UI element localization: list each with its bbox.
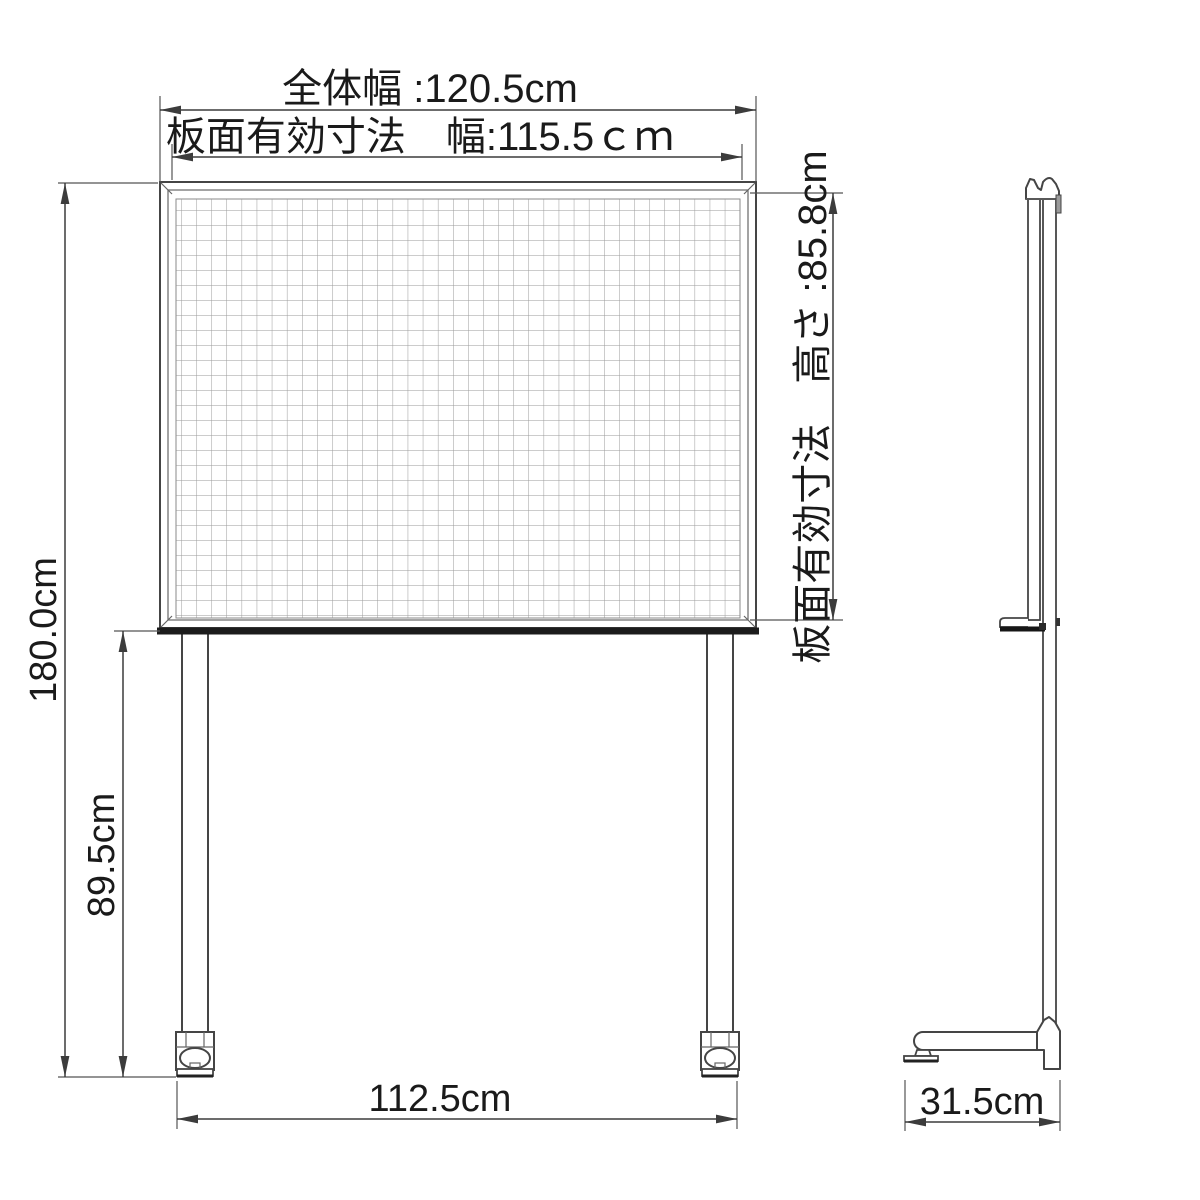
left-leg — [182, 628, 208, 1034]
overall-width-label: 全体幅 :120.5cm — [282, 67, 578, 111]
side-board-panel — [1028, 199, 1040, 620]
dim-board-bottom-height: 89.5cm — [81, 631, 160, 1077]
side-view: 31.5cm — [904, 178, 1061, 1131]
dim-board-face-width: 板面有効寸法 幅:115.5ｃｍ — [166, 115, 742, 180]
left-caster — [176, 1032, 214, 1076]
dimension-diagram: 全体幅 :120.5cm 板面有効寸法 幅:115.5ｃｍ 板面有効寸法 高さ … — [0, 0, 1200, 1200]
board-face-width-label: 板面有効寸法 幅:115.5ｃｍ — [166, 115, 674, 159]
base-depth-label: 31.5cm — [920, 1081, 1045, 1123]
overall-height-label: 180.0cm — [23, 557, 65, 703]
side-top-bracket — [1056, 195, 1061, 213]
whiteboard-dimension-drawing: 全体幅 :120.5cm 板面有効寸法 幅:115.5ｃｍ 板面有効寸法 高さ … — [0, 0, 1200, 1200]
side-top-cap — [1026, 178, 1059, 199]
front-view: 全体幅 :120.5cm 板面有効寸法 幅:115.5ｃｍ 板面有効寸法 高さ … — [23, 67, 843, 1129]
board-bottom-height-label: 89.5cm — [81, 793, 123, 918]
right-caster — [701, 1032, 739, 1076]
side-base-foot — [904, 1017, 1060, 1069]
dim-leg-span: 112.5cm — [177, 1078, 737, 1129]
dim-overall-height: 180.0cm — [23, 183, 176, 1077]
dim-base-depth: 31.5cm — [905, 1080, 1060, 1131]
leg-span-label: 112.5cm — [369, 1078, 512, 1120]
board-panel — [157, 182, 759, 631]
grid-board-surface — [176, 199, 740, 618]
dim-board-face-height: 板面有効寸法 高さ :85.8cm — [750, 150, 843, 663]
side-glide-stem — [915, 1050, 931, 1056]
board-face-height-label: 板面有効寸法 高さ :85.8cm — [791, 150, 835, 663]
right-leg — [707, 628, 733, 1034]
